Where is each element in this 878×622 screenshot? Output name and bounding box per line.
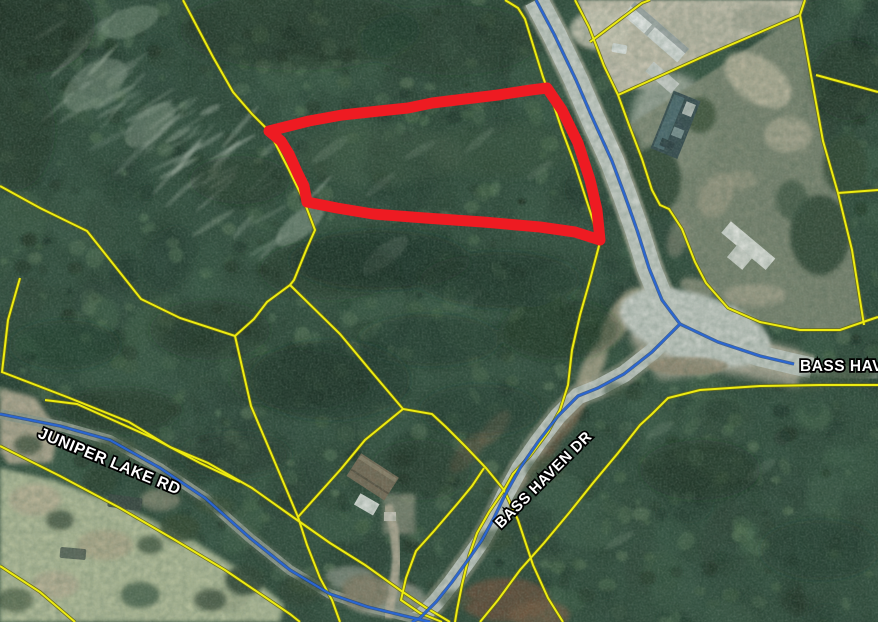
svg-text:BASS HAVEN: BASS HAVEN xyxy=(800,358,878,375)
